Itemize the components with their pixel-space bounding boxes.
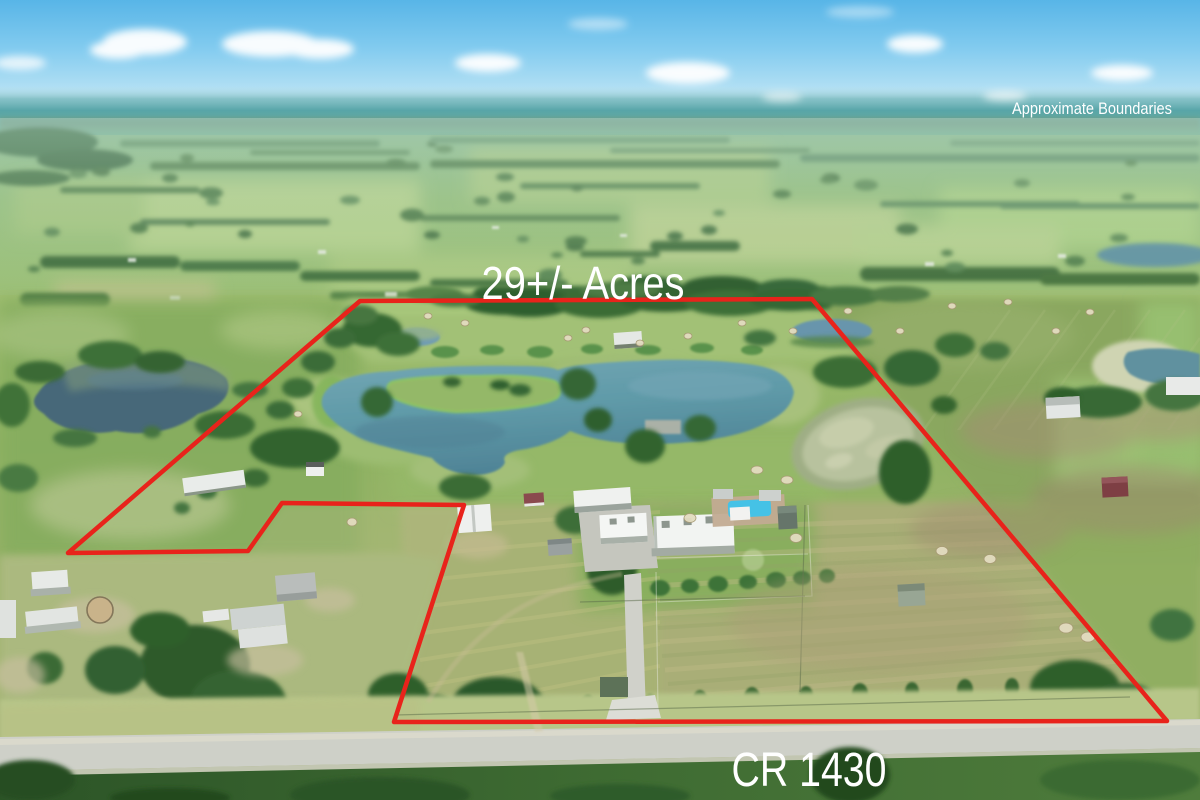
svg-text:CR 1430: CR 1430 <box>732 744 887 797</box>
svg-text:Approximate Boundaries: Approximate Boundaries <box>1012 99 1172 118</box>
svg-text:29+/- Acres: 29+/- Acres <box>482 257 685 309</box>
